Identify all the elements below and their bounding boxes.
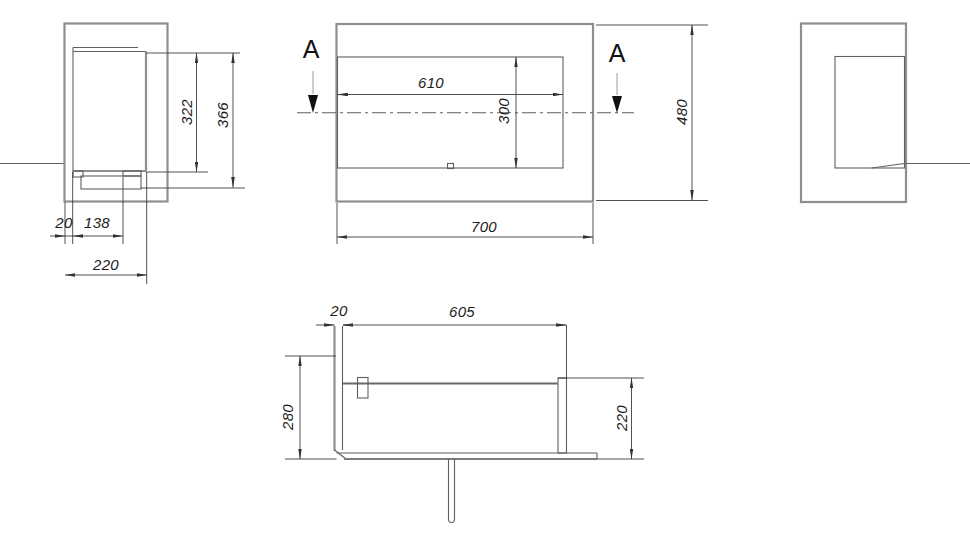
side-view-left bbox=[0, 24, 245, 285]
dim-label-inner-height: 322 bbox=[179, 99, 194, 125]
side-right-chamfer bbox=[872, 164, 905, 169]
side-left-inner-details bbox=[73, 48, 146, 190]
section-body bbox=[335, 326, 598, 523]
dim-label-section-wall: 20 bbox=[330, 303, 348, 318]
side-right-outer-body bbox=[801, 24, 906, 203]
section-letter-left: A bbox=[303, 37, 320, 62]
dim-label-section-left-height: 280 bbox=[280, 404, 295, 430]
dim-label-opening-height: 300 bbox=[496, 98, 511, 124]
section-view bbox=[285, 325, 644, 523]
front-dimensions bbox=[337, 25, 708, 244]
dim-label-side-depth: 220 bbox=[93, 257, 119, 272]
side-left-outer-body bbox=[65, 24, 168, 202]
dim-label-side-inset: 138 bbox=[84, 215, 110, 230]
section-cut-markers bbox=[308, 71, 622, 113]
dim-label-section-right-height: 220 bbox=[614, 405, 629, 431]
side-view-right bbox=[801, 24, 970, 203]
section-letter-right: A bbox=[609, 41, 626, 66]
side-left-dimensions bbox=[50, 53, 245, 284]
dim-label-side-wall: 20 bbox=[55, 215, 73, 230]
drawing-geometry bbox=[0, 0, 970, 546]
dim-label-section-inner-width: 605 bbox=[449, 304, 475, 319]
dim-label-opening-width: 610 bbox=[418, 75, 444, 90]
dim-label-overall-height-side: 366 bbox=[215, 102, 230, 128]
burner-switch-section bbox=[358, 378, 369, 399]
dim-label-overall-width: 700 bbox=[471, 219, 497, 234]
technical-drawing-canvas: 322 366 20 138 220 A A 610 300 700 480 2… bbox=[0, 0, 970, 546]
front-view bbox=[297, 24, 708, 244]
section-dimensions bbox=[285, 325, 644, 459]
drain-stem bbox=[449, 459, 455, 523]
dim-label-overall-height-front: 480 bbox=[674, 99, 689, 125]
side-right-glass bbox=[835, 57, 905, 169]
